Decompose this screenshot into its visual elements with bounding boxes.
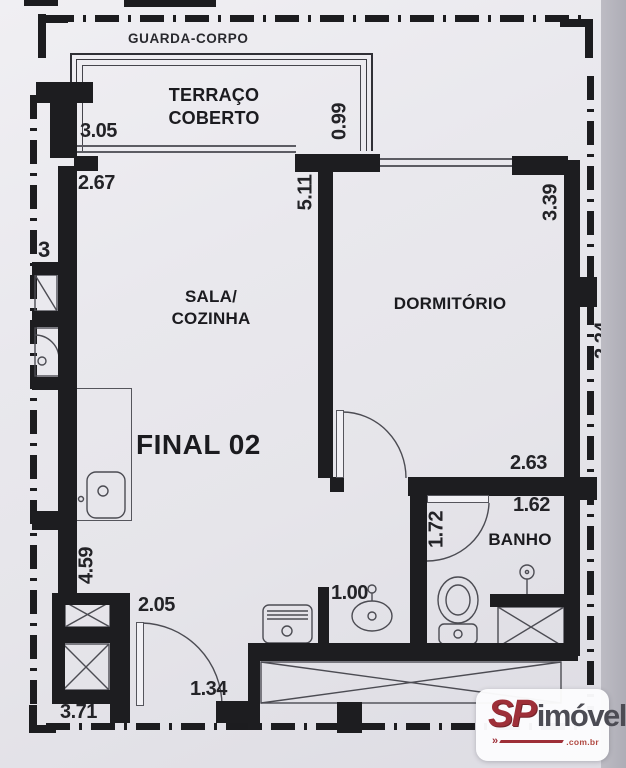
room-label-terraco: TERRAÇO COBERTO	[158, 84, 270, 130]
meter-hatch	[34, 327, 60, 377]
bedroom-window-line	[380, 165, 512, 167]
dim-terraco-depth: 0.99	[329, 95, 352, 149]
property-corner-tr	[560, 19, 593, 27]
dim-terraco-width: 3.05	[80, 120, 117, 143]
wall-bottom-main	[248, 643, 578, 661]
dim-entry-opening: 1.34	[190, 678, 227, 701]
dim-counter-wall: 4.59	[76, 539, 99, 593]
dim-left-partial: 3	[38, 237, 50, 263]
terrace-window-line	[77, 151, 296, 153]
unit-label: FINAL 02	[136, 429, 261, 461]
wall-left-upper	[50, 101, 77, 158]
dim-sink-counter: 1.00	[331, 582, 368, 605]
guard-rail-label: GUARDA-CORPO	[128, 31, 248, 46]
wall-bottom-stub	[337, 702, 362, 733]
brand-underline: » .com.br	[476, 733, 609, 747]
entry-door-leaf	[136, 622, 144, 706]
shaft-hatch	[64, 601, 111, 628]
wall-terrace-cap	[36, 82, 93, 103]
watermark-logo: SP imóvel » .com.br	[476, 689, 609, 761]
photo-edge-mark	[124, 0, 216, 7]
chevron-icon: »	[492, 736, 498, 747]
brand-text: SP imóvel	[476, 689, 609, 733]
vent-louver	[34, 274, 58, 312]
photo-edge	[601, 0, 626, 768]
dim-banho-door: 1.72	[426, 503, 449, 557]
dim-banho-width: 1.62	[513, 494, 550, 517]
room-label-sala-cozinha: SALA/ COZINHA	[155, 286, 267, 330]
wall-notch	[580, 477, 597, 500]
wall-shaft-mid	[52, 627, 130, 643]
wall-right	[564, 160, 580, 656]
shaft-hatch	[62, 643, 110, 691]
property-corner-tl	[38, 15, 68, 23]
wall-divider	[318, 170, 333, 478]
shower-box-hatch	[497, 606, 565, 648]
bedroom-door-arc	[342, 412, 406, 478]
brand-suffix: imóvel	[537, 700, 626, 731]
kitchen-sink	[84, 470, 128, 520]
wall-sala-corner	[74, 156, 98, 171]
property-line-top	[50, 15, 584, 22]
dim-sala-depth: 5.11	[295, 166, 318, 220]
room-label-dormitorio: DORMITÓRIO	[380, 293, 520, 315]
toilet	[435, 576, 481, 646]
wall-shaft-left	[52, 593, 65, 703]
dim-dorm-width: 2.63	[510, 452, 547, 475]
bedroom-door-leaf	[336, 410, 344, 478]
wall-stub	[32, 262, 60, 275]
wall-kitchen-stub	[318, 587, 329, 649]
wall-entry-stub	[216, 701, 250, 723]
brand-prefix: SP	[488, 695, 535, 733]
dim-bottom-edge: 3.71	[60, 701, 97, 724]
wall-stub	[32, 377, 60, 390]
property-corner-bl	[29, 725, 56, 733]
room-label-banho: BANHO	[480, 529, 560, 551]
wall-shaft-right	[110, 593, 130, 723]
stove	[262, 604, 313, 644]
property-corner-tr	[585, 22, 593, 58]
wall-left-main	[58, 166, 77, 598]
swoosh-line	[499, 740, 564, 743]
brand-domain: .com.br	[566, 737, 599, 747]
wall-window-cap	[512, 156, 568, 175]
bedroom-window-line	[380, 158, 512, 160]
wall-stub	[32, 511, 60, 530]
dim-dorm-depth: 3.39	[540, 176, 563, 230]
dim-sala-width: 2.67	[78, 172, 115, 195]
floor-plan: GUARDA-CORPO TERRAÇO COBERTO SALA/ COZIN…	[0, 0, 626, 768]
wall-divider-foot	[330, 477, 344, 492]
wall-shower-top	[490, 594, 567, 607]
property-line-right	[587, 76, 594, 716]
dim-kitchen-width: 2.05	[138, 594, 175, 617]
wall-stub	[32, 311, 62, 327]
photo-edge-mark	[24, 0, 58, 6]
wall-notch	[580, 277, 597, 307]
terrace-window-line	[77, 145, 296, 147]
wall-bath-left	[410, 477, 427, 655]
property-line-left	[30, 95, 37, 725]
